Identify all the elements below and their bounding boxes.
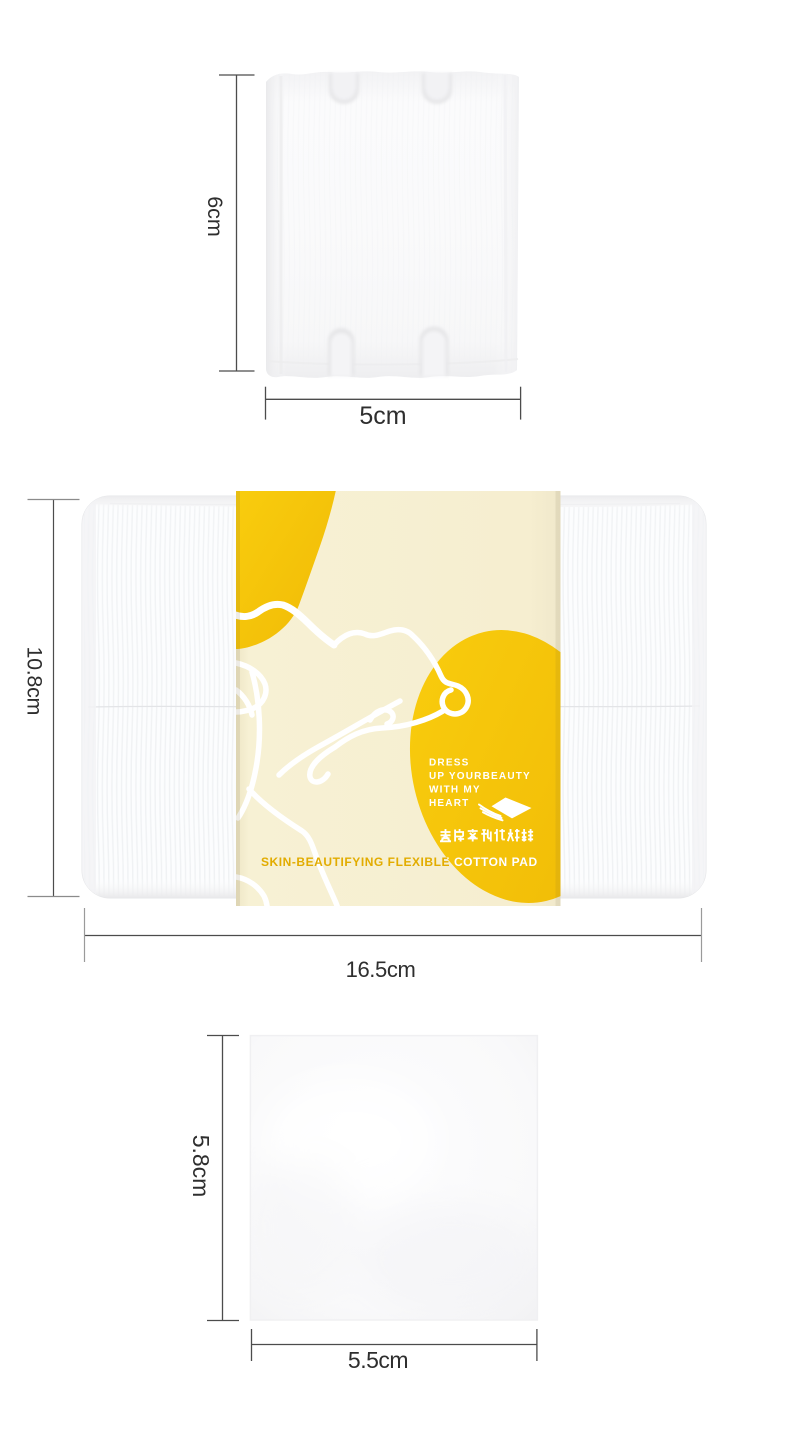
svg-text:WITH MY: WITH MY xyxy=(429,785,481,796)
svg-text:UP YOURBEAUTY: UP YOURBEAUTY xyxy=(429,771,531,782)
svg-text:16.5cm: 16.5cm xyxy=(346,957,416,982)
svg-text:5.5cm: 5.5cm xyxy=(348,1347,408,1373)
svg-text:HEART: HEART xyxy=(429,798,469,809)
svg-text:6cm: 6cm xyxy=(203,196,227,237)
svg-text:DRESS: DRESS xyxy=(429,758,469,769)
svg-text:5cm: 5cm xyxy=(359,402,406,430)
svg-text:10.8cm: 10.8cm xyxy=(23,646,47,715)
svg-text:5.8cm: 5.8cm xyxy=(188,1135,214,1198)
